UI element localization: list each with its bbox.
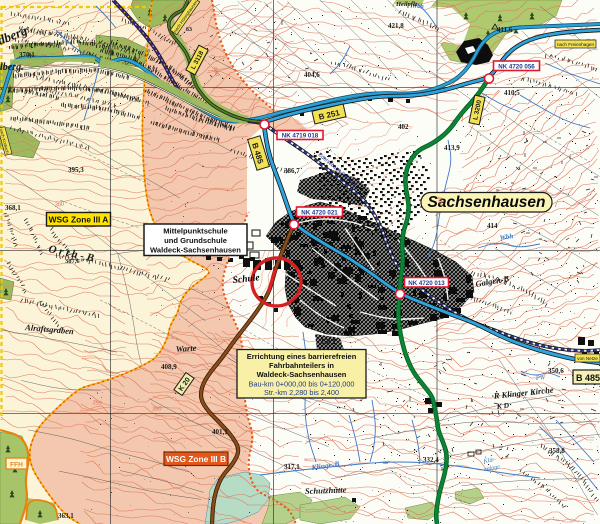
svg-text:395,3: 395,3 xyxy=(68,166,84,174)
svg-text:421,8: 421,8 xyxy=(388,22,404,30)
svg-text:Sachsenhausen: Sachsenhausen xyxy=(427,194,545,211)
svg-text:FFH: FFH xyxy=(10,462,23,469)
svg-text:413,9: 413,9 xyxy=(444,144,460,152)
svg-text:358,8: 358,8 xyxy=(549,447,565,455)
svg-text:nach Freienhagen: nach Freienhagen xyxy=(557,42,594,47)
svg-text:402: 402 xyxy=(398,123,409,131)
svg-text:B 485: B 485 xyxy=(576,373,600,383)
svg-text:414: 414 xyxy=(487,222,498,230)
svg-text:358,1: 358,1 xyxy=(320,338,336,346)
svg-text:370,1: 370,1 xyxy=(19,51,35,59)
svg-text:K D: K D xyxy=(495,401,510,411)
svg-text:NK 4720 013: NK 4720 013 xyxy=(408,280,445,287)
svg-text:von Netze: von Netze xyxy=(577,356,598,361)
svg-text:410,5: 410,5 xyxy=(504,89,520,97)
svg-text:332,4: 332,4 xyxy=(423,456,439,464)
svg-text:Waldeck-Sachsenhausen: Waldeck-Sachsenhausen xyxy=(257,370,347,379)
svg-text:Str.-km 2,280 bis 2,400: Str.-km 2,280 bis 2,400 xyxy=(264,388,339,397)
svg-text:386,7: 386,7 xyxy=(284,167,300,175)
svg-text:PW: PW xyxy=(535,374,547,382)
svg-text:404,6: 404,6 xyxy=(304,71,320,79)
svg-text:317,1: 317,1 xyxy=(284,463,300,471)
svg-text:und Grundschule: und Grundschule xyxy=(164,236,227,245)
svg-text:Errichtung eines barrierefreie: Errichtung eines barrierefreien xyxy=(247,352,357,361)
svg-text:401,1: 401,1 xyxy=(212,428,228,436)
svg-text:Warte: Warte xyxy=(175,343,196,354)
svg-text:Mittelpunktschule: Mittelpunktschule xyxy=(163,227,228,236)
svg-text:NK 4720 056: NK 4720 056 xyxy=(498,64,535,71)
svg-text:Waldeck-Sachsenhausen: Waldeck-Sachsenhausen xyxy=(150,246,241,255)
svg-text:408,9: 408,9 xyxy=(161,363,177,371)
svg-text:Fahrbahnteilers in: Fahrbahnteilers in xyxy=(269,361,334,370)
svg-text:63: 63 xyxy=(186,27,192,33)
svg-text:WSG Zone III B: WSG Zone III B xyxy=(166,454,226,464)
svg-text:350,6: 350,6 xyxy=(548,367,564,375)
svg-text:390: 390 xyxy=(151,405,163,413)
svg-text:NK 4719 018: NK 4719 018 xyxy=(282,133,319,140)
svg-text:Bau-km 0+000,00 bis 0+120,000: Bau-km 0+000,00 bis 0+120,000 xyxy=(249,379,355,388)
svg-text:NK 4720 021: NK 4720 021 xyxy=(301,210,338,217)
svg-text:Schutzhütte: Schutzhütte xyxy=(305,485,347,496)
svg-text:WSG Zone III A: WSG Zone III A xyxy=(49,215,109,225)
svg-text:Heilpflz: Heilpflz xyxy=(395,1,418,8)
svg-text:363,1: 363,1 xyxy=(58,512,74,520)
svg-text:368,1: 368,1 xyxy=(5,204,21,212)
svg-text:lberg.: lberg. xyxy=(0,62,24,73)
svg-text:411,6: 411,6 xyxy=(497,26,513,34)
